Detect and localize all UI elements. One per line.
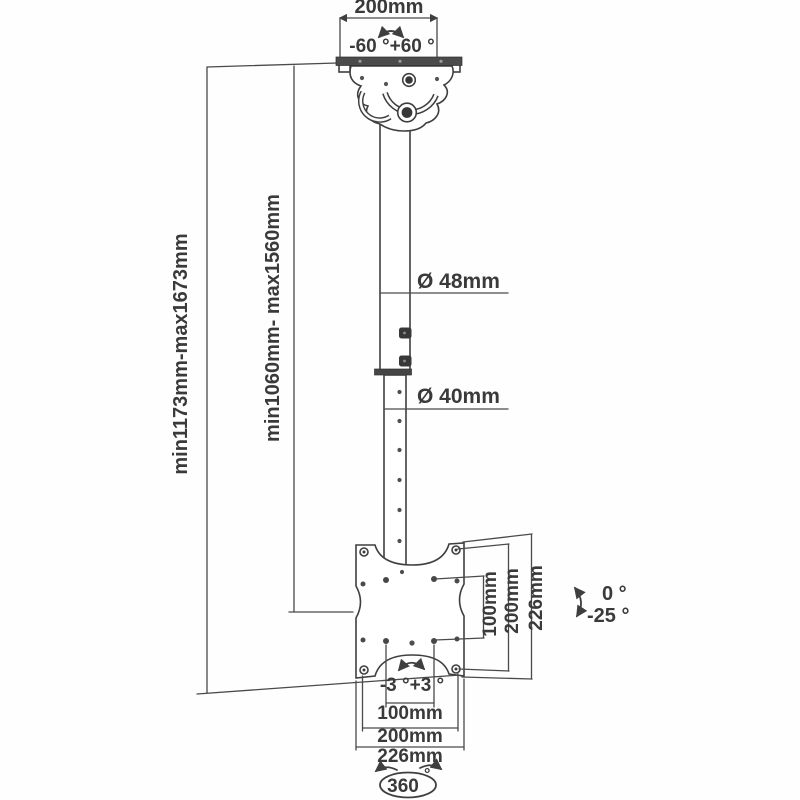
plate-height-ext-bottom	[462, 677, 532, 679]
plate-center-hole	[409, 640, 414, 645]
upper-diameter-label: Ø 48mm	[417, 270, 500, 293]
ceiling-bar-hole	[398, 60, 401, 63]
plate-edge-hole	[361, 638, 366, 643]
clamp-knob-lower-dot	[403, 360, 406, 363]
bracket-hole	[435, 77, 439, 81]
ceiling-mount-diagram: 200mm -60 °+60 ° min1173mm-max1673mm min…	[0, 0, 800, 800]
plate-center-hole	[400, 570, 404, 574]
bracket-hole	[360, 76, 364, 80]
plate-corner-hole-dot	[455, 549, 458, 552]
vesa-hole	[383, 638, 389, 644]
tilt-annotation: 0 ° -25 °	[575, 583, 629, 627]
pole-hole	[397, 390, 401, 394]
vesa-hole	[383, 577, 389, 583]
rotation-arrow-left-icon	[376, 767, 397, 771]
pivot-bolt	[405, 76, 413, 84]
clamp-knob-upper-dot	[403, 332, 406, 335]
rotation-degree-label: °	[424, 766, 430, 783]
swivel-bolt	[402, 107, 413, 118]
swivel-annotation: -60 °+60 °	[349, 31, 434, 57]
overall-height-label: min1173mm-max1673mm	[170, 233, 192, 474]
lower-pole-tube	[384, 375, 406, 566]
plate-body	[356, 543, 464, 678]
hole-width-label: 200mm	[377, 726, 443, 747]
pole-hole	[397, 539, 401, 543]
bracket-hole	[384, 82, 388, 86]
tilt-up-label: 0 °	[602, 583, 627, 605]
top-width-label: 200mm	[355, 0, 424, 18]
hole-height-label: 200mm	[502, 568, 523, 634]
vesa-width-label: 100mm	[377, 703, 443, 724]
tilt-arrow-icon	[575, 588, 581, 616]
plate-corner-hole-dot	[363, 551, 366, 554]
plate-corner-hole-dot	[455, 668, 458, 671]
plate-height-label: 226mm	[526, 565, 547, 631]
pole-hole	[397, 478, 401, 482]
height-ext-top	[207, 63, 337, 67]
rotation-annotation: 360 °	[376, 765, 441, 797]
diagram-page: 200mm -60 °+60 ° min1173mm-max1673mm min…	[0, 0, 800, 800]
pole-hole	[397, 419, 401, 423]
plate-edge-hole	[455, 579, 460, 584]
vesa-height-label: 100mm	[480, 571, 501, 637]
plate-edge-hole	[361, 582, 366, 587]
pole-hole	[397, 508, 401, 512]
ceiling-bracket	[336, 57, 462, 131]
pole-hole	[397, 448, 401, 452]
rotation-label: 360	[387, 776, 419, 797]
pole-height-label: min1060mm- max1560mm	[262, 194, 284, 442]
plate-width-label: 226mm	[377, 746, 443, 767]
plate-height-ext-top	[463, 534, 532, 542]
hole-height-ext-top	[458, 544, 509, 549]
pole-collar	[375, 369, 412, 375]
tilt-down-label: -25 °	[587, 605, 629, 627]
ceiling-bar-hole	[358, 60, 361, 63]
vesa-hole	[431, 638, 437, 644]
plate-corner-hole-dot	[363, 669, 366, 672]
telescopic-pole	[375, 118, 412, 566]
level-adjust-arrow-icon	[399, 663, 424, 670]
hole-height-ext-bottom	[459, 669, 509, 671]
swivel-range-label: -60 °+60 °	[349, 36, 434, 57]
vesa-plate: -3 °+3 °	[356, 543, 464, 696]
lower-diameter-label: Ø 40mm	[417, 385, 500, 408]
ceiling-bar-hole	[439, 60, 442, 63]
